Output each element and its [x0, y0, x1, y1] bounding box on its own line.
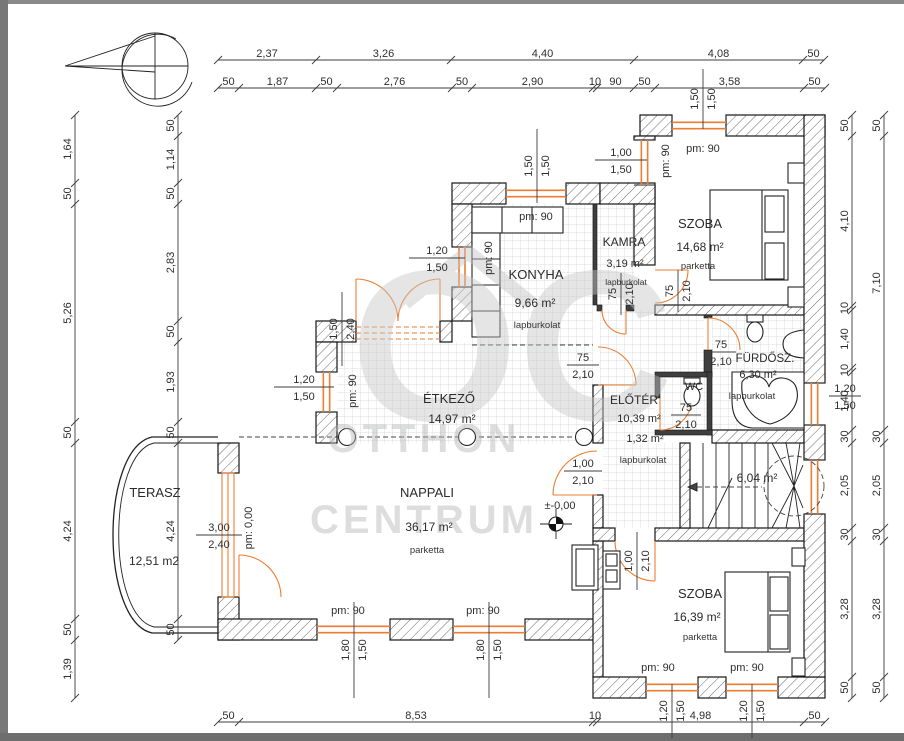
floor-plan-page: ±-0,00 OC OTTHON CENTRUM TERASZ 12,51 m2…: [0, 0, 904, 741]
dim-label: 50: [808, 76, 820, 88]
window-icon: [316, 372, 337, 412]
dim-pair-a: 1,00: [610, 147, 631, 159]
dim-label: 8,53: [405, 710, 426, 722]
watermark-line1: OTTHON: [328, 417, 521, 461]
room-label-kamra-area: 3,19 m²: [606, 258, 644, 270]
dim-label: 50: [839, 119, 851, 131]
room-label-terasz-area: 12,51 m2: [129, 554, 179, 568]
dim-pair-b: 2,40: [208, 539, 229, 551]
dim-pair-a: 1,00: [572, 458, 593, 470]
dim-label: 50: [62, 187, 74, 199]
dim-pair-a: 1,50: [523, 155, 535, 176]
dim-pair-b: 1,50: [706, 88, 718, 109]
dim-pair-a: 1,80: [340, 639, 352, 660]
dim-pair-b: 1,50: [492, 639, 504, 660]
room-label-eloter-name: ELŐTÉR: [610, 392, 658, 407]
dim-label: 1,39: [62, 658, 74, 679]
dim-pair-b: 1,50: [834, 400, 855, 412]
dim-label: 50: [165, 325, 177, 337]
dim-label: 50: [222, 76, 234, 88]
dim-label: 50: [871, 119, 883, 131]
dim-pair-a: 1,50: [328, 318, 340, 339]
dim-pair-b: 2,40: [345, 318, 357, 339]
dim-pair-b: 1,50: [293, 391, 314, 403]
window-icon: [317, 619, 390, 640]
level-marker: ±-0,00: [540, 500, 576, 539]
pm-konyha-top: pm: 90: [519, 211, 553, 223]
page-frame-top: [0, 0, 904, 4]
dim-chain-bottom-row: 508,53104,9850: [214, 710, 829, 726]
room-label-szoba1-floor: parketta: [681, 261, 716, 272]
dim-label: 30: [871, 528, 883, 540]
dim-label: 4,10: [839, 210, 851, 231]
dim-pair-b: 2,10: [572, 369, 593, 381]
dim-label: 50: [320, 76, 332, 88]
dim-label: 1,14: [165, 149, 177, 170]
dim-label: 50: [456, 76, 468, 88]
dim-pair-a: 1,20: [738, 700, 750, 721]
bed-szoba-also: [725, 548, 805, 676]
dim-pair-a: 1,20: [426, 245, 447, 257]
pm-nappali-2: pm: 90: [466, 605, 500, 617]
dim-label: 30: [839, 430, 851, 442]
dim-label: 50: [165, 426, 177, 438]
room-label-etkezo-area: 14,97 m²: [428, 412, 475, 426]
dim-label: 30: [871, 430, 883, 442]
dim-label: 50: [62, 623, 74, 635]
dim-chain-top-row-2: 501,87502,76502,901090503,5850: [214, 76, 829, 92]
window-icon: [506, 183, 566, 204]
window-icon: [672, 115, 726, 136]
dim-label: 3,28: [839, 598, 851, 619]
dim-label: 50: [165, 119, 177, 131]
dim-pair-b: 1,50: [357, 639, 369, 660]
page-frame-left: [0, 0, 8, 741]
dim-pair-b: 2,10: [710, 356, 731, 368]
room-label-furdoszoba-floor: lapburkolat: [729, 391, 776, 402]
dim-chain-top-row-1: 2,373,264,404,0850: [214, 48, 828, 64]
window-icon: [804, 460, 825, 514]
window-icon: [804, 383, 825, 425]
dim-label: 2,90: [522, 76, 543, 88]
fireplace: [572, 545, 620, 590]
pm-szoba1-top: pm: 90: [686, 143, 720, 155]
dim-pair-win-konyha-top: 1,501,50: [523, 129, 552, 203]
dim-label: 50: [807, 48, 819, 60]
window-icon: [634, 140, 655, 185]
north-arrow-icon: [65, 33, 192, 106]
dim-pair-b: 2,10: [572, 475, 593, 487]
dim-pair-b: 2,10: [675, 419, 696, 431]
dim-label: 2,76: [384, 76, 405, 88]
dim-pair-door-terasz: 3,002,40: [196, 522, 242, 551]
room-label-konyha-area: 9,66 m²: [515, 296, 556, 310]
dim-pair-b: 2,10: [624, 283, 636, 304]
pm-etkezo-left: pm: 90: [347, 374, 359, 408]
dim-label: 2,05: [839, 475, 851, 496]
dim-pair-b: 1,50: [755, 700, 767, 721]
dim-pair-b: 1,50: [610, 164, 631, 176]
room-label-eloter-floor: lapburkolat: [620, 455, 667, 466]
dim-label: 50: [165, 623, 177, 635]
dim-label: 10: [839, 302, 851, 314]
dim-label: 10: [589, 76, 601, 88]
dim-chain-left-outer: 1,64505,26504,24501,39: [62, 111, 79, 702]
dim-label: 1,87: [267, 76, 288, 88]
dim-pair-door-szoba2: 1,002,10: [623, 532, 652, 590]
floor-plan-svg: ±-0,00 OC OTTHON CENTRUM TERASZ 12,51 m2…: [0, 0, 904, 741]
dim-label: 50: [62, 426, 74, 438]
room-label-konyha-name: KONYHA: [509, 267, 564, 282]
dim-label: 90: [609, 76, 621, 88]
dim-pair-a: 1,00: [623, 550, 635, 571]
dim-pair-win-szoba2-1: 1,201,50: [658, 684, 687, 738]
dim-label: 1,64: [62, 138, 74, 159]
dim-pair-b: 2,10: [640, 550, 652, 571]
dim-label: 50: [165, 187, 177, 199]
dim-label: 50: [638, 76, 650, 88]
room-label-szoba1-name: SZOBA: [678, 216, 722, 231]
dim-label: 1,40: [839, 328, 851, 349]
dim-label: 1,93: [165, 371, 177, 392]
dim-pair-a: 1,20: [834, 383, 855, 395]
dim-label: 4,24: [62, 520, 74, 541]
dim-label: 4,40: [532, 48, 553, 60]
dim-pair-a: 75: [577, 352, 589, 364]
dim-label: 5,26: [62, 302, 74, 323]
room-label-terasz-name: TERASZ: [129, 485, 180, 500]
dim-label: 10: [839, 364, 851, 376]
level-marker-text: ±-0,00: [544, 500, 575, 512]
dim-pair-a: 1,20: [293, 374, 314, 386]
pm-vestibule: pm: 90: [660, 144, 672, 178]
room-label-konyha-floor: lapburkolat: [514, 320, 561, 331]
dim-label: 2,05: [871, 475, 883, 496]
room-label-etkezo-name: ÉTKEZŐ: [423, 391, 475, 406]
pm-konyha-left: pm: 90: [483, 241, 495, 275]
dim-label: 4,24: [165, 520, 177, 541]
dim-label: 2,83: [165, 252, 177, 273]
dim-label: 50: [222, 710, 234, 722]
pm-szoba2-2: pm: 90: [730, 662, 764, 674]
dim-pair-b: 1,50: [540, 155, 552, 176]
dim-label: 2,37: [256, 48, 277, 60]
pm-nappali-1: pm: 90: [331, 605, 365, 617]
dim-label: 3,26: [373, 48, 394, 60]
dim-pair-a: 75: [680, 402, 692, 414]
pm-szoba2-1: pm: 90: [641, 662, 675, 674]
dim-label: 10: [589, 710, 601, 722]
room-label-eloter-area: 10,39 m²: [617, 413, 661, 425]
room-label-lepcso-area: 6,04 m²: [737, 471, 778, 485]
dim-pair-b: 1,50: [675, 700, 687, 721]
pm-terasz: pm: 0,00: [243, 507, 255, 550]
dim-label: 7,10: [871, 272, 883, 293]
dim-pair-a: 75: [664, 285, 676, 297]
dim-pair-a: 1,20: [658, 700, 670, 721]
dim-pair-win-etkezo-left: 1,201,50: [274, 374, 334, 403]
room-label-szoba1-area: 14,68 m²: [676, 240, 723, 254]
room-label-wc-area: 1,32 m²: [626, 433, 664, 445]
room-label-nappali-area: 36,17 m²: [405, 520, 452, 534]
dim-label: 3,28: [871, 598, 883, 619]
room-label-szoba2-floor: parketta: [683, 632, 718, 643]
dim-pair-b: 2,10: [681, 280, 693, 301]
dim-pair-win-vestibule: 1,001,50: [595, 147, 647, 176]
toilet-furdoszoba: [747, 315, 763, 342]
dim-label: 50: [871, 681, 883, 693]
room-label-nappali-name: NAPPALI: [400, 485, 454, 500]
room-label-furdoszoba-area: 6,30 m²: [739, 369, 777, 381]
room-label-kamra-name: KAMRA: [603, 235, 646, 249]
room-label-furdoszoba-name: FÜRDŐSZ.: [736, 351, 795, 365]
dim-pair-a: 75: [715, 339, 727, 351]
dim-pair-a: 3,00: [208, 522, 229, 534]
dim-pair-win-szoba2-2: 1,201,50: [738, 684, 767, 738]
dim-label: 30: [839, 528, 851, 540]
dim-chain-right-outer: 507,10302,05303,2850: [871, 111, 888, 702]
bed-szoba-felso: [710, 163, 804, 307]
dim-pair-win-szoba-top: 1,501,50: [689, 69, 718, 129]
dim-label: 4,08: [708, 48, 729, 60]
dim-pair-a: 1,80: [475, 639, 487, 660]
dim-label: 50: [808, 710, 820, 722]
dim-pair-a: 75: [607, 288, 619, 300]
dim-pair-b: 1,50: [426, 262, 447, 274]
room-label-nappali-floor: parketta: [410, 545, 445, 556]
room-label-wc-name: WC: [685, 381, 703, 393]
dim-label: 3,58: [719, 76, 740, 88]
dim-label: 4,98: [690, 710, 711, 722]
page-frame-bottom: [0, 733, 904, 741]
room-label-szoba2-area: 16,39 m²: [673, 610, 720, 624]
room-label-szoba2-name: SZOBA: [678, 586, 722, 601]
dim-pair-a: 1,50: [689, 88, 701, 109]
dim-label: 50: [839, 681, 851, 693]
